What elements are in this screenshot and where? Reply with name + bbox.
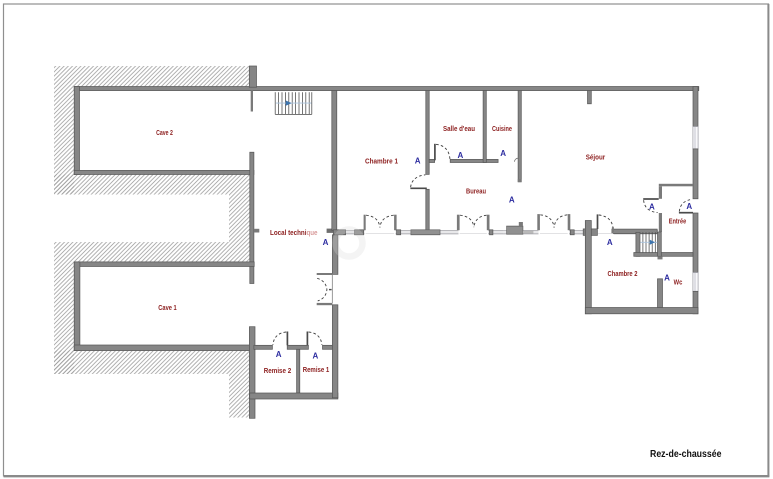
svg-text:A: A <box>607 238 613 247</box>
svg-text:Rez-de-chaussée: Rez-de-chaussée <box>650 449 722 460</box>
svg-text:A: A <box>500 149 506 158</box>
svg-text:A: A <box>458 151 464 160</box>
svg-text:A: A <box>664 274 670 283</box>
svg-text:A: A <box>313 352 319 361</box>
svg-text:Cave 2: Cave 2 <box>156 128 173 137</box>
svg-text:Remise 2: Remise 2 <box>264 366 291 375</box>
svg-text:Bureau: Bureau <box>466 187 486 196</box>
svg-text:Cave 1: Cave 1 <box>158 303 177 312</box>
svg-text:A: A <box>415 157 421 166</box>
svg-text:Remise 1: Remise 1 <box>303 365 330 374</box>
svg-text:A: A <box>686 202 692 211</box>
svg-text:Entrée: Entrée <box>669 217 687 226</box>
svg-text:A: A <box>649 202 655 211</box>
svg-text:Salle d'eau: Salle d'eau <box>443 124 475 133</box>
svg-text:A: A <box>323 238 329 247</box>
svg-text:Wc: Wc <box>674 278 683 287</box>
svg-text:Cuisine: Cuisine <box>492 124 512 133</box>
svg-text:A: A <box>509 196 515 205</box>
svg-text:Séjour: Séjour <box>586 153 606 162</box>
svg-text:Chambre 2: Chambre 2 <box>608 269 638 278</box>
svg-text:Chambre 1: Chambre 1 <box>365 157 398 166</box>
svg-text:A: A <box>276 350 282 359</box>
svg-text:Local technique: Local technique <box>270 228 318 237</box>
